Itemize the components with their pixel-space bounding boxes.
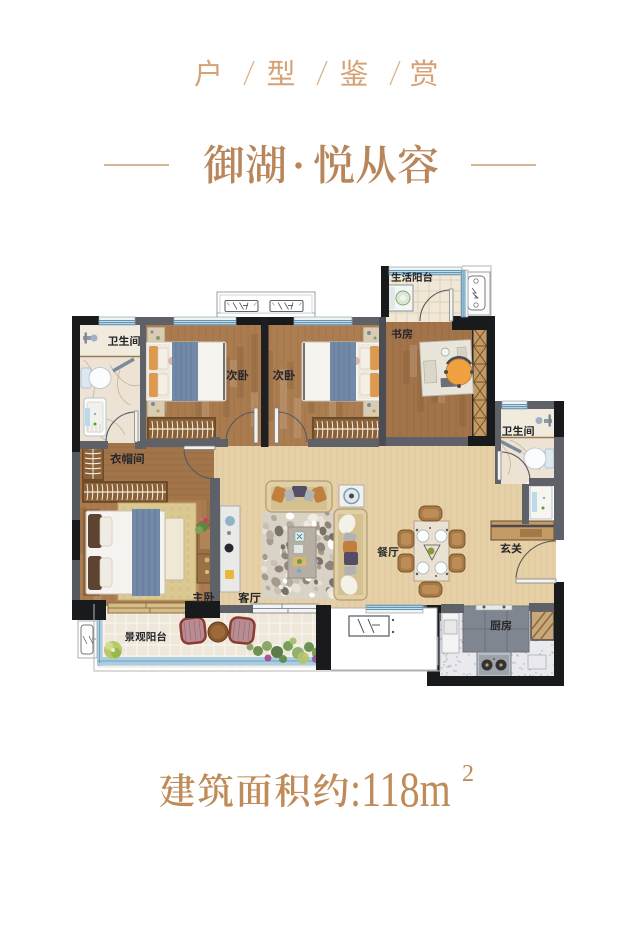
svg-text::118m: :118m xyxy=(350,762,451,817)
svg-text:2: 2 xyxy=(462,761,474,787)
